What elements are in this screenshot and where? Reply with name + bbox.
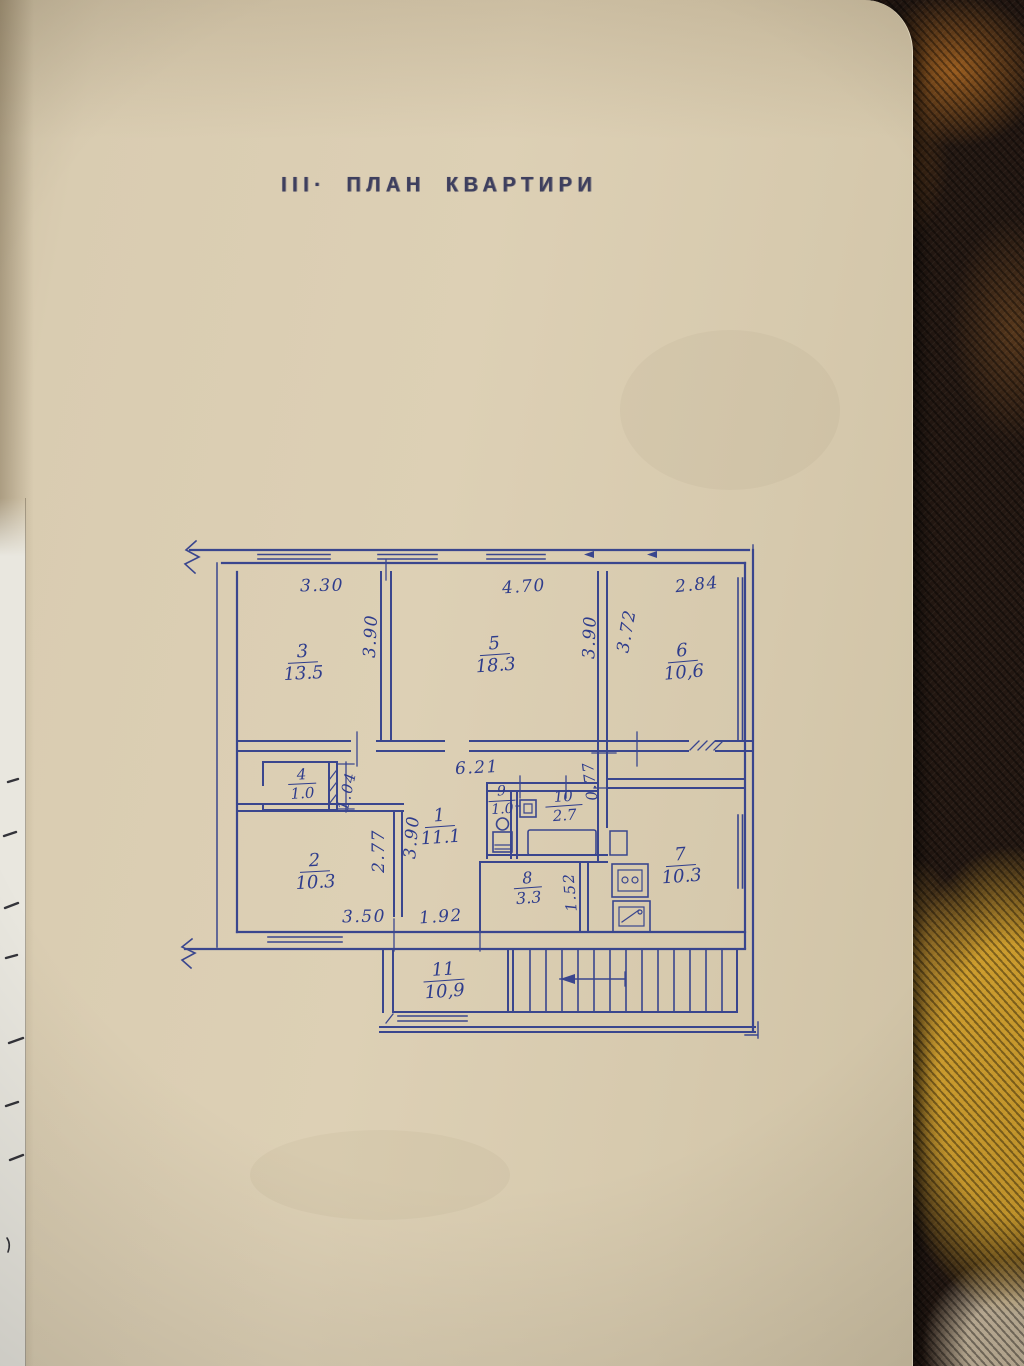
photo-of-book-page: ІІІ· ПЛАН КВАРТИРИ [0, 0, 1024, 1366]
room-area: 2.7 [552, 806, 577, 825]
room-label-4: 4 1.0 [287, 766, 316, 803]
dim-room2-depth: 2.77 [369, 829, 389, 873]
room-area: 10.3 [661, 865, 702, 888]
room-number: 2 [299, 850, 330, 873]
dim-room8-depth: 1.52 [559, 872, 580, 913]
dim-bottom-room2: 3.50 [342, 907, 386, 928]
room-area: 13.5 [283, 662, 324, 685]
room-number: 5 [479, 633, 510, 656]
dim-hall-stub: 0.77 [579, 760, 602, 801]
dim-top-room6: 2.84 [674, 573, 720, 597]
dim-closet: 1.04 [334, 770, 360, 812]
dim-hall-width: 6.21 [455, 757, 500, 779]
room-label-7: 7 10.3 [660, 844, 703, 889]
room-number: 3 [287, 641, 318, 664]
dim-top-room3: 3.30 [300, 576, 344, 597]
room-area: 10,9 [424, 980, 465, 1003]
room-area: 10,6 [663, 661, 705, 685]
room-label-6: 6 10,6 [661, 639, 705, 684]
room-number: 8 [513, 868, 542, 889]
room-area: 10.3 [295, 871, 336, 894]
room-number: 11 [422, 959, 464, 983]
dim-top-room5: 4.70 [501, 575, 546, 598]
room-label-1: 1 11.1 [419, 805, 462, 850]
room-label-3: 3 13.5 [282, 641, 324, 685]
room-label-10: 10 2.7 [544, 787, 583, 825]
room-number: 6 [667, 640, 698, 664]
room-number: 4 [287, 766, 315, 786]
room-number: 10 [544, 787, 582, 808]
dim-room6-depth: 3.72 [613, 608, 640, 655]
dim-bottom-hall: 1.92 [418, 905, 463, 928]
room-area: 3.3 [515, 888, 542, 908]
pen-marks [0, 498, 25, 1366]
room-area: 11.1 [420, 826, 461, 849]
room-area: 18.3 [475, 654, 516, 677]
room-area: 1.0 [491, 801, 514, 818]
room-label-9: 9 1.0 [488, 784, 517, 819]
room-label-8: 8 3.3 [513, 868, 544, 907]
book-page: ІІІ· ПЛАН КВАРТИРИ [0, 0, 913, 1366]
room-number: 7 [665, 844, 696, 867]
under-page-edge [0, 498, 26, 1366]
dim-room5-depth: 3.90 [579, 615, 601, 660]
room-label-2: 2 10.3 [294, 850, 336, 894]
room-label-5: 5 18.3 [474, 633, 517, 678]
room-number: 1 [424, 805, 455, 828]
room-label-11: 11 10,9 [422, 959, 466, 1004]
dim-hall-depth: 3.90 [400, 814, 424, 859]
dim-room3-depth: 3.90 [360, 614, 382, 659]
plan-labels: 3 13.5 5 18.3 6 10,6 4 1.0 1 11.1 9 1.0 [0, 0, 912, 1366]
room-number: 9 [488, 784, 516, 802]
room-area: 1.0 [290, 784, 315, 802]
